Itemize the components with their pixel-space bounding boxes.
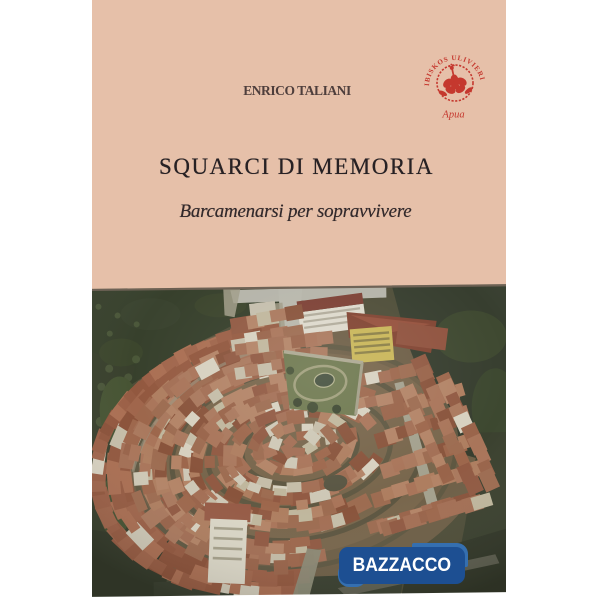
svg-text:Apua: Apua: [441, 110, 464, 121]
